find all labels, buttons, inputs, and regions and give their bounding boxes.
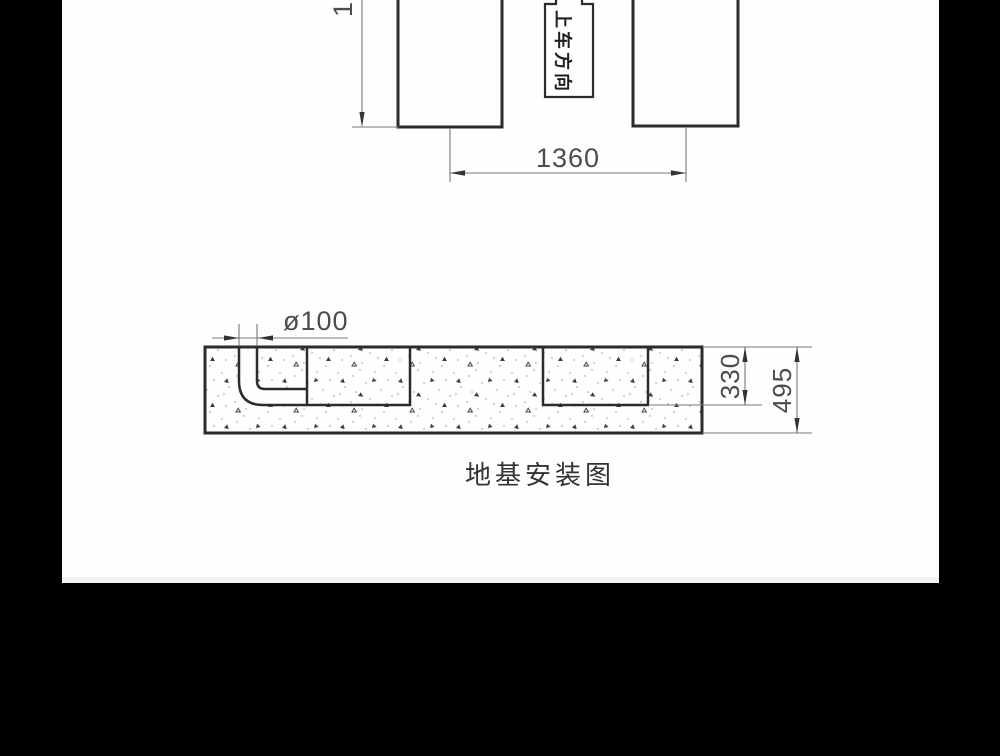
cad-drawing-canvas: 上车方向 1 1360 ø100 (0, 0, 1000, 756)
dim-1360-text: 1360 (536, 143, 600, 173)
section-caption: 地基安装图 (465, 461, 615, 490)
dim-495-text: 495 (767, 367, 797, 413)
page: 上车方向 1 1360 ø100 (0, 0, 1000, 756)
paper-bottom-edge (62, 577, 939, 583)
left-dim-text-partial: 1 (328, 1, 358, 17)
drive-on-direction-label: 上车方向 (552, 10, 573, 94)
dim-phi100-text: ø100 (283, 306, 349, 336)
dim-330-text: 330 (715, 353, 745, 399)
